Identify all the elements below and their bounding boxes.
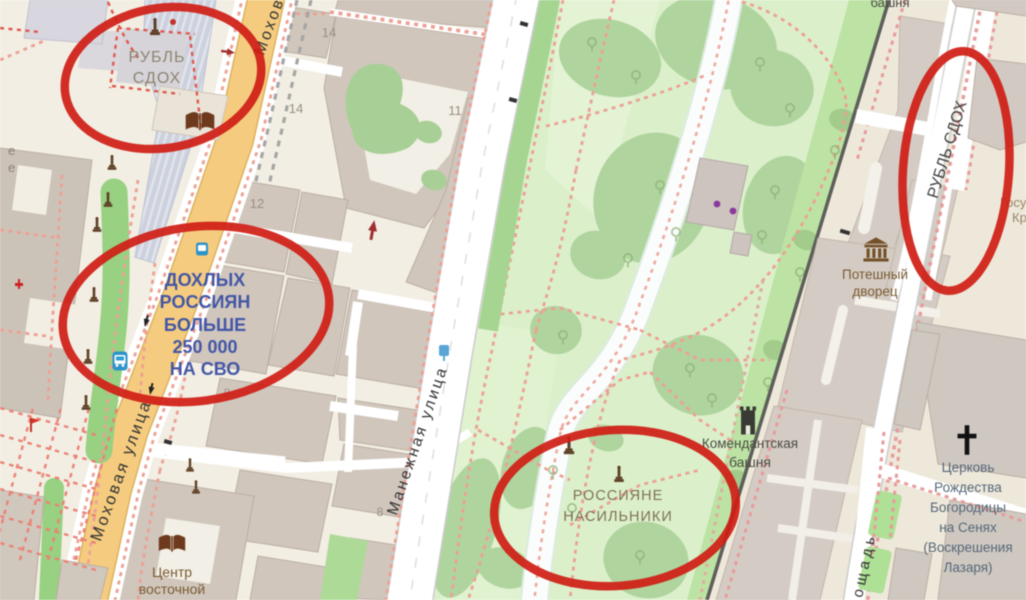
svg-text:11: 11 xyxy=(448,103,462,118)
svg-text:Лазаря): Лазаря) xyxy=(943,560,992,575)
svg-text:Комендантская: Комендантская xyxy=(702,436,798,451)
svg-text:е: е xyxy=(8,160,15,175)
svg-text:Кр: Кр xyxy=(1012,210,1026,225)
svg-text:башня: башня xyxy=(729,454,771,470)
svg-text:ДОХЛЫХ: ДОХЛЫХ xyxy=(165,270,245,290)
svg-text:12: 12 xyxy=(250,196,264,211)
svg-text:Рождества: Рождества xyxy=(934,480,1002,495)
svg-text:Богородицы: Богородицы xyxy=(930,500,1006,515)
svg-text:(Воскрешения: (Воскрешения xyxy=(923,540,1012,555)
svg-text:РОССИЯНЕ: РОССИЯНЕ xyxy=(573,488,664,504)
svg-text:8: 8 xyxy=(377,505,384,519)
svg-text:Потешный: Потешный xyxy=(842,267,908,282)
svg-text:Центр: Центр xyxy=(152,564,192,580)
svg-text:14: 14 xyxy=(289,101,303,116)
svg-text:РОССИЯН: РОССИЯН xyxy=(160,292,251,312)
svg-text:башня: башня xyxy=(870,0,909,10)
svg-text:250 000: 250 000 xyxy=(172,337,237,357)
svg-text:НА СВО: НА СВО xyxy=(170,359,241,379)
svg-text:БОЛЬШЕ: БОЛЬШЕ xyxy=(164,315,246,335)
svg-text:Церковь: Церковь xyxy=(942,460,995,475)
svg-text:дворец: дворец xyxy=(852,284,897,299)
svg-text:14: 14 xyxy=(322,25,336,40)
svg-text:СДОХ: СДОХ xyxy=(133,70,181,87)
svg-text:е: е xyxy=(8,143,15,158)
svg-text:на Сенях: на Сенях xyxy=(939,520,997,535)
svg-text:восточной: восточной xyxy=(139,581,205,597)
svg-text:НАСИЛЬНИКИ: НАСИЛЬНИКИ xyxy=(563,509,673,525)
svg-text:РУБЛЬ: РУБЛЬ xyxy=(129,49,186,66)
